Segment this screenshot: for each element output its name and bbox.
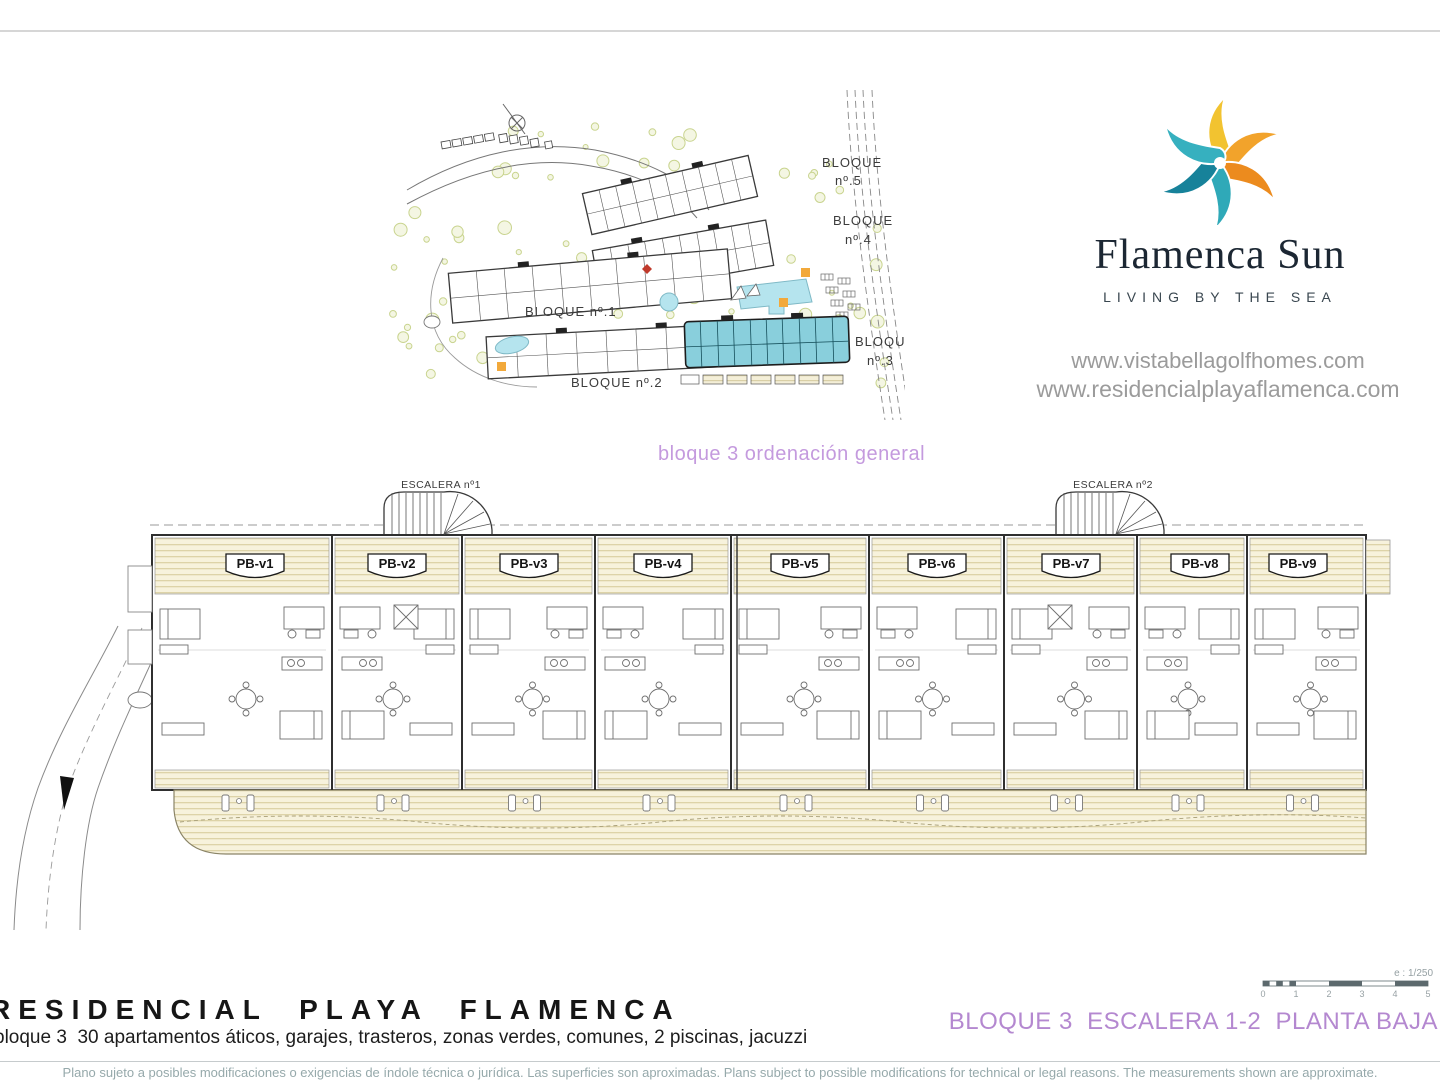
tree bbox=[591, 123, 598, 130]
west-annex bbox=[128, 566, 152, 612]
url-playaflamenca[interactable]: www.residencialplayaflamenca.com bbox=[1018, 374, 1418, 404]
block-5-number: nº.5 bbox=[835, 173, 862, 188]
tree bbox=[406, 343, 412, 349]
tree bbox=[669, 160, 680, 171]
amenity-marker bbox=[497, 362, 506, 371]
scale-tick: 3 bbox=[1359, 989, 1364, 999]
tree bbox=[498, 221, 512, 235]
unit-label: PB-v5 bbox=[771, 554, 829, 578]
tree bbox=[597, 155, 609, 167]
tree bbox=[391, 265, 397, 271]
svg-text:PB-v9: PB-v9 bbox=[1280, 556, 1317, 571]
block-4-label: BLOQUE bbox=[833, 213, 893, 228]
svg-text:PB-v4: PB-v4 bbox=[645, 556, 683, 571]
block-2-label: BLOQUE nº.2 bbox=[571, 375, 663, 390]
project-title: RESIDENCIAL PLAYA FLAMENCA bbox=[0, 994, 681, 1026]
tree bbox=[390, 311, 397, 318]
tree bbox=[404, 324, 410, 330]
tree bbox=[442, 259, 447, 264]
staircase-1 bbox=[384, 492, 492, 534]
staircase-1-label: ESCALERA nº1 bbox=[401, 479, 481, 491]
unit-label: PB-v4 bbox=[634, 554, 692, 578]
svg-text:PB-v3: PB-v3 bbox=[511, 556, 548, 571]
unit-label: PB-v2 bbox=[368, 554, 426, 578]
tree bbox=[672, 137, 685, 150]
disclaimer-bar: Plano sujeto a posibles modificaciones o… bbox=[0, 1061, 1440, 1084]
garage-row bbox=[441, 123, 553, 167]
tree bbox=[435, 344, 443, 352]
tree bbox=[871, 315, 884, 328]
tree bbox=[424, 237, 430, 243]
scale-bar: e : 1/250 0 1 2 3 4 5 bbox=[1255, 966, 1440, 1004]
tree bbox=[684, 129, 697, 142]
tree bbox=[516, 250, 521, 255]
tree bbox=[815, 193, 825, 203]
flamenca-sun-logo-icon bbox=[1155, 95, 1285, 225]
block-3-label: BLOQUE bbox=[855, 334, 905, 349]
access-road bbox=[14, 626, 166, 930]
tree bbox=[394, 223, 407, 236]
block-3-highlight bbox=[684, 311, 850, 368]
tree bbox=[398, 332, 409, 343]
tree bbox=[452, 226, 463, 237]
tree bbox=[458, 331, 466, 339]
tree bbox=[426, 369, 435, 378]
tree bbox=[450, 336, 456, 342]
svg-text:PB-v8: PB-v8 bbox=[1182, 556, 1219, 571]
tree bbox=[876, 378, 886, 388]
lounger-row bbox=[843, 291, 855, 297]
tree bbox=[649, 129, 656, 136]
staircase-2-label: ESCALERA nº2 bbox=[1073, 479, 1153, 491]
tree bbox=[729, 309, 734, 314]
block-3-number: nº.3 bbox=[867, 353, 894, 368]
tree bbox=[639, 158, 649, 168]
road-direction-arrow bbox=[60, 776, 74, 810]
block-1-label: BLOQUE nº.1 bbox=[525, 304, 617, 319]
amenity-marker bbox=[779, 298, 788, 307]
svg-text:PB-v7: PB-v7 bbox=[1053, 556, 1090, 571]
lounger-row bbox=[821, 274, 833, 280]
project-subtitle: bloque 3 30 apartamentos áticos, garajes… bbox=[0, 1027, 807, 1049]
page-top-rule bbox=[0, 30, 1440, 32]
staircase-2 bbox=[1056, 492, 1164, 534]
planter-oval bbox=[128, 692, 152, 708]
brand-urls: www.vistabellagolfhomes.com www.residenc… bbox=[1018, 348, 1418, 404]
site-plan-caption: bloque 3 ordenación general bbox=[658, 443, 925, 466]
unit-label: PB-v6 bbox=[908, 554, 966, 578]
amenity-marker bbox=[801, 268, 810, 277]
svg-text:PB-v6: PB-v6 bbox=[919, 556, 956, 571]
svg-text:PB-v2: PB-v2 bbox=[379, 556, 416, 571]
tree bbox=[787, 255, 796, 264]
tree bbox=[563, 241, 569, 247]
tree bbox=[870, 259, 882, 271]
tree bbox=[667, 311, 675, 319]
brand-tagline: LIVING BY THE SEA bbox=[1030, 289, 1410, 305]
unit-label: PB-v8 bbox=[1171, 554, 1229, 578]
unit-label: PB-v1 bbox=[226, 554, 284, 578]
tree bbox=[538, 131, 543, 136]
sheet-title: BLOQUE 3 ESCALERA 1-2 PLANTA BAJA bbox=[949, 1008, 1438, 1036]
storage-row bbox=[681, 375, 843, 384]
tree bbox=[779, 168, 789, 178]
url-vistabella[interactable]: www.vistabellagolfhomes.com bbox=[1018, 348, 1418, 374]
planter bbox=[424, 316, 440, 328]
tree bbox=[512, 172, 518, 178]
svg-text:PB-v5: PB-v5 bbox=[782, 556, 819, 571]
east-side-terrace bbox=[1366, 540, 1390, 594]
round-pool bbox=[660, 293, 678, 311]
block-4-number: nº.4 bbox=[845, 232, 872, 247]
site-road-east bbox=[847, 90, 905, 420]
scale-label: e : 1/250 bbox=[1394, 968, 1433, 979]
svg-text:PB-v1: PB-v1 bbox=[237, 556, 274, 571]
unit-label: PB-v7 bbox=[1042, 554, 1100, 578]
lounger-row bbox=[831, 300, 843, 306]
tree bbox=[548, 175, 554, 181]
tree bbox=[809, 172, 816, 179]
unit-label: PB-v3 bbox=[500, 554, 558, 578]
brand-name: Flamenca Sun bbox=[1030, 231, 1410, 279]
unit-label: PB-v9 bbox=[1269, 554, 1327, 578]
scale-tick: 0 bbox=[1260, 989, 1265, 999]
site-plan: BLOQUE nº.5 BLOQUE nº.4 BLOQUE nº.1 BLOQ… bbox=[385, 90, 905, 420]
lounger-row bbox=[838, 278, 850, 284]
main-pool bbox=[737, 279, 812, 314]
scale-tick: 1 bbox=[1293, 989, 1298, 999]
tree bbox=[409, 207, 421, 219]
brand-logo-block: Flamenca Sun LIVING BY THE SEA bbox=[1030, 95, 1410, 305]
tree bbox=[439, 298, 446, 305]
scale-tick: 2 bbox=[1326, 989, 1331, 999]
west-annex bbox=[128, 630, 152, 664]
scale-tick: 5 bbox=[1425, 989, 1430, 999]
floor-plan: ESCALERA nº1 ESCALERA nº2 PB-v1 PB-v2 PB… bbox=[0, 478, 1440, 948]
block-5-label: BLOQUE bbox=[822, 155, 882, 170]
scale-tick: 4 bbox=[1392, 989, 1397, 999]
